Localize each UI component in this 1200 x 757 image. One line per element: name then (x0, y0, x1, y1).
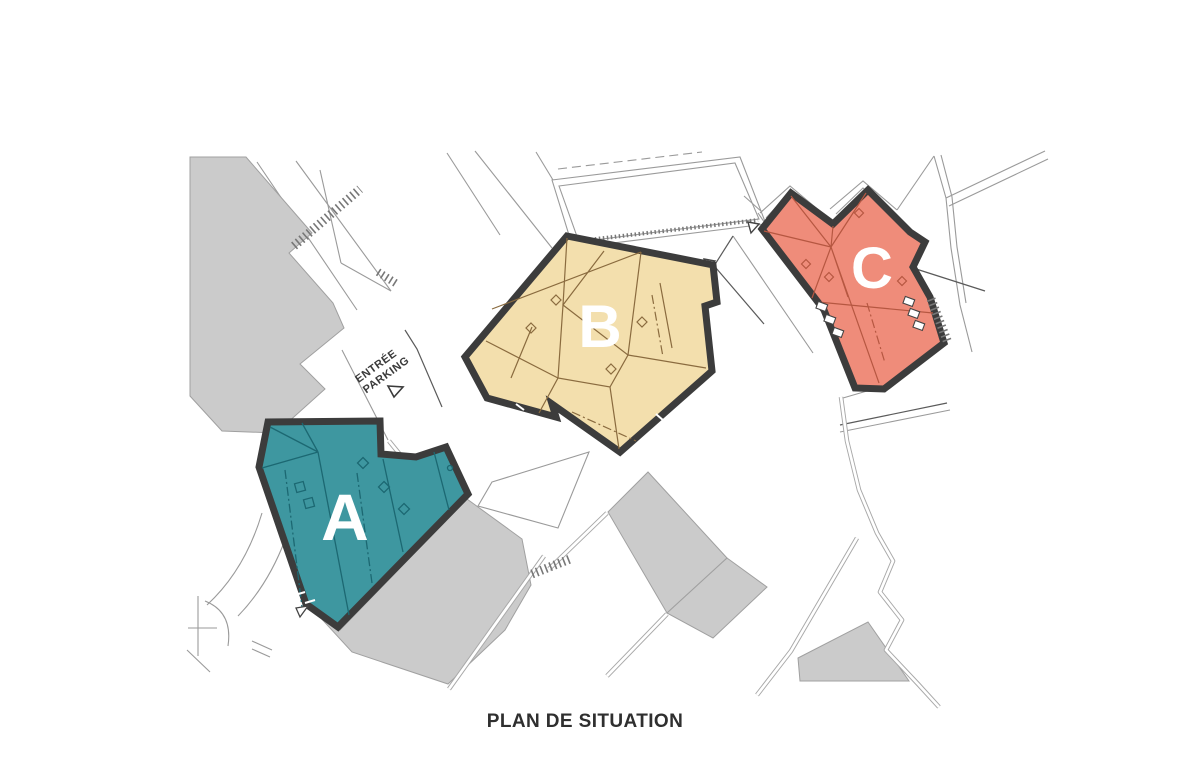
door-arrow-icon (296, 606, 308, 617)
site-plan-drawing: A B (0, 0, 1200, 757)
lot-line (296, 161, 391, 291)
building-b: B (465, 236, 717, 452)
gable-outlines-above-c (744, 156, 934, 218)
street-edge (475, 151, 552, 248)
building-c-label: C (851, 236, 893, 301)
gray-building-triangle (798, 622, 909, 681)
boundary-line (716, 268, 764, 324)
arc-path (205, 601, 229, 646)
page-title: PLAN DE SITUATION (487, 711, 683, 733)
courtyard-outline (552, 157, 766, 248)
gable-line (897, 156, 934, 210)
building-a-label: A (321, 480, 369, 554)
building-c: C (762, 190, 948, 389)
street-edge (447, 153, 500, 235)
lot-line (341, 263, 391, 291)
site-plan-page: A B (0, 0, 1200, 757)
building-b-label: B (578, 293, 621, 360)
road-line (946, 151, 1045, 198)
courtyard-north-of-b (552, 152, 766, 248)
entrance-arrow-icon (388, 386, 403, 397)
lot-line (843, 391, 867, 398)
road (607, 614, 667, 676)
street-edge (536, 152, 553, 180)
curved-street (238, 540, 285, 616)
stair-hatch (378, 272, 397, 284)
gray-building-northwest (190, 157, 344, 433)
direction-arrow-icon (748, 222, 759, 233)
lot-line (320, 170, 341, 263)
courtyard-a-b (478, 452, 589, 528)
detail-line (252, 641, 272, 657)
street-edge (405, 330, 442, 407)
boundary-line (714, 236, 733, 266)
bottom-left-details (187, 596, 272, 672)
road-line (949, 159, 1048, 206)
curved-street (207, 513, 262, 605)
